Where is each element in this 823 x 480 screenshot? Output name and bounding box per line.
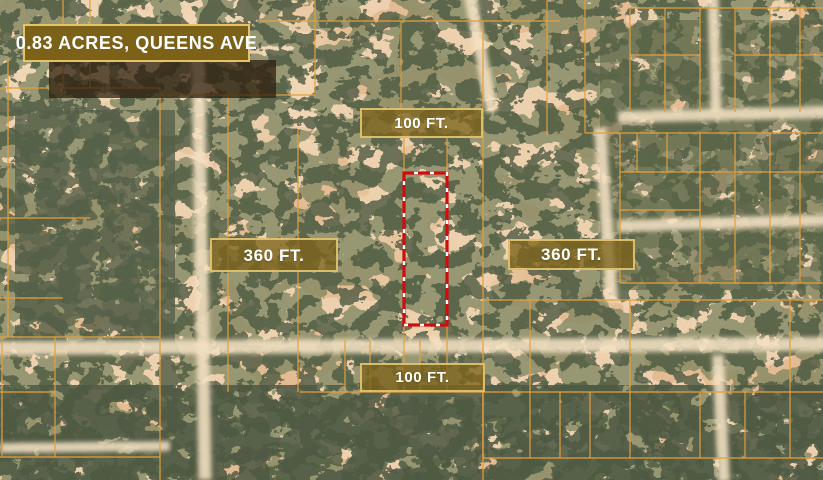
listing-title-badge: 0.83 ACRES, QUEENS AVE (23, 24, 250, 62)
dimension-label-right: 360 FT. (508, 239, 635, 270)
dimension-bottom-text: 100 FT. (395, 370, 449, 385)
dimension-top-text: 100 FT. (394, 116, 448, 131)
dimension-label-bottom: 100 FT. (360, 363, 485, 392)
listing-title-text: 0.83 ACRES, QUEENS AVE (16, 34, 258, 52)
dimension-label-top: 100 FT. (360, 108, 483, 138)
dimension-right-text: 360 FT. (541, 246, 602, 263)
terrain-layer (0, 0, 823, 480)
dimension-label-left: 360 FT. (210, 238, 338, 272)
land-listing-map[interactable]: 0.83 ACRES, QUEENS AVE 100 FT. 360 FT. 3… (0, 0, 823, 480)
dimension-left-text: 360 FT. (244, 247, 305, 264)
